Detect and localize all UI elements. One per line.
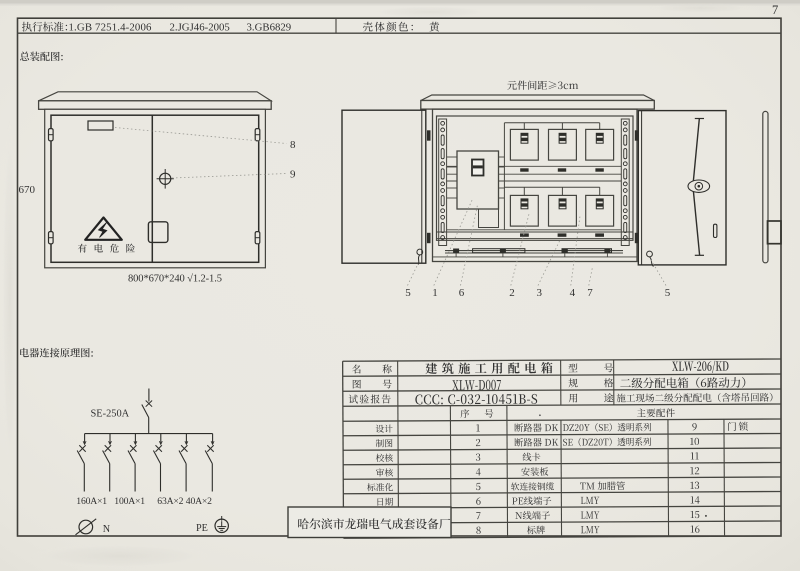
svg-text:100A×1: 100A×1 [114, 496, 145, 507]
svg-text:63A×2: 63A×2 [157, 496, 183, 507]
svg-text:160A×1: 160A×1 [76, 496, 107, 507]
svg-text:7: 7 [587, 287, 593, 299]
svg-text:8: 8 [290, 139, 296, 151]
svg-text:40A×2: 40A×2 [186, 496, 212, 507]
svg-text:2.JGJ46-2005: 2.JGJ46-2005 [170, 22, 230, 34]
svg-text:7: 7 [772, 3, 778, 17]
svg-text:670: 670 [19, 184, 36, 196]
svg-text:800*670*240 √1.2-1.5: 800*670*240 √1.2-1.5 [128, 273, 222, 285]
svg-text:1.GB 7251.4-2006: 1.GB 7251.4-2006 [69, 22, 153, 34]
svg-text:5: 5 [405, 287, 411, 299]
svg-text:3: 3 [537, 287, 543, 299]
svg-text:3.GB6829: 3.GB6829 [247, 22, 292, 34]
svg-text:2: 2 [509, 287, 515, 299]
svg-text:4: 4 [570, 287, 576, 299]
svg-text:N: N [103, 524, 111, 535]
svg-text:SE-250A: SE-250A [91, 409, 130, 420]
svg-text:PE: PE [196, 523, 208, 534]
svg-text:6: 6 [459, 287, 465, 299]
svg-text:1: 1 [432, 287, 438, 299]
svg-text:5: 5 [665, 287, 671, 299]
svg-text:9: 9 [290, 168, 296, 180]
